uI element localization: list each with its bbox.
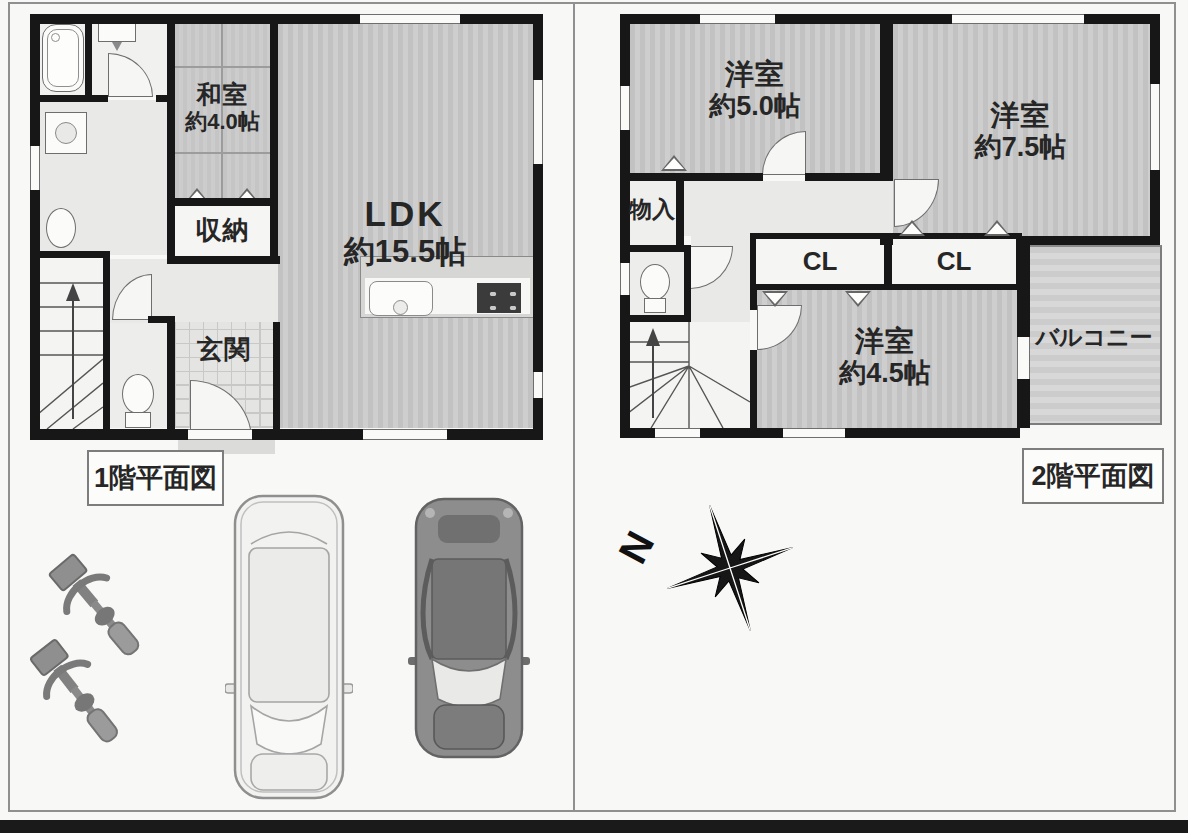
room-name: 和室 (197, 80, 249, 109)
plan-title-2f: 2階平面図 (1022, 448, 1164, 504)
closet-door-triangle (899, 220, 925, 236)
room-size: 約7.5帖 (975, 132, 1067, 163)
washing-machine-icon (45, 112, 87, 154)
entrance-opening (188, 429, 252, 440)
room-label-bedroom45: 洋室 約4.5帖 (765, 316, 1005, 398)
room-label-ldk: LDK 約15.5帖 (295, 188, 515, 276)
plan-title-text: 1階平面図 (94, 460, 217, 496)
room-size: 約5.0帖 (709, 91, 801, 122)
room-label-storage: 収納 (175, 214, 270, 248)
room-label-bedroom75: 洋室 約7.5帖 (903, 92, 1138, 170)
wall (30, 14, 543, 24)
window (360, 14, 460, 24)
compass-rose: N (608, 492, 808, 642)
room-label-balcony: バルコニー (1026, 322, 1162, 352)
bottom-black-bar (0, 820, 1188, 833)
window (952, 14, 1084, 24)
wall (167, 322, 175, 440)
window (620, 86, 630, 130)
window (620, 263, 630, 295)
window (655, 428, 700, 438)
window (30, 146, 40, 190)
wall (684, 245, 691, 322)
stairs-icon (37, 259, 103, 429)
wall (30, 95, 108, 102)
room-name: 物入 (629, 196, 675, 222)
room-label-bedroom5: 洋室 約5.0帖 (655, 52, 855, 128)
closet-label: CL (803, 246, 838, 277)
wall (620, 315, 691, 322)
closet-door-triangle (845, 291, 871, 307)
bicycle-icon (25, 633, 133, 755)
wall (1017, 379, 1030, 428)
window (700, 14, 775, 24)
room-name: 洋室 (725, 58, 785, 91)
stairs-icon (627, 322, 750, 428)
wall (175, 198, 270, 206)
washbasin-icon (46, 208, 76, 248)
gray-car-top-view (408, 497, 530, 761)
floorplan-image: 和室 約4.0帖 収納 LDK 約15.5帖 玄関 1階平面図 CL (0, 0, 1188, 833)
stove-icon (477, 283, 521, 313)
toilet-icon (640, 264, 670, 300)
closet-door-triangle (661, 155, 687, 171)
window (363, 429, 447, 440)
toilet-tank-icon (125, 412, 151, 428)
room-label-washitsu: 和室 約4.0帖 (175, 76, 270, 138)
window (783, 428, 845, 438)
wall (103, 251, 110, 440)
white-car-top-view (225, 492, 353, 804)
wall (880, 233, 893, 245)
wall (620, 14, 630, 438)
wall (880, 14, 893, 179)
wall (30, 251, 110, 258)
room-name: 洋室 (855, 325, 915, 358)
room-size: 約4.0帖 (185, 109, 260, 134)
wall-basin-icon (98, 22, 136, 42)
compass-north-label: N (610, 524, 662, 570)
room-size: 約4.5帖 (839, 358, 931, 389)
wall (750, 288, 757, 310)
closet1-box: CL (750, 233, 890, 290)
room-name: バルコニー (1035, 324, 1152, 350)
toilet-icon (122, 374, 154, 414)
window (1150, 84, 1160, 170)
wall (805, 173, 893, 181)
wall (273, 322, 280, 440)
plan-title-1f: 1階平面図 (87, 450, 224, 506)
closet2-box: CL (886, 233, 1022, 290)
closet-door-triangle (984, 220, 1010, 236)
wall (270, 14, 278, 263)
room-name: 玄関 (197, 335, 251, 365)
wall (167, 14, 175, 263)
room-name: 収納 (196, 216, 250, 246)
wall (620, 173, 763, 181)
wall (750, 350, 757, 428)
hallway2-floor (684, 181, 893, 236)
wall (167, 256, 280, 264)
room-name: 洋室 (991, 99, 1051, 132)
plan-title-text: 2階平面図 (1031, 458, 1154, 494)
wall (620, 245, 684, 252)
window (533, 80, 543, 164)
room-name: LDK (365, 194, 446, 234)
wall (1020, 236, 1150, 245)
closet-label: CL (937, 246, 972, 277)
kitchen-sink-icon (369, 281, 433, 316)
wall (30, 14, 40, 440)
compass-star (647, 492, 808, 642)
bathtub-icon (42, 24, 84, 92)
room-size: 約15.5帖 (344, 234, 466, 269)
closet-door-triangle (762, 291, 788, 307)
room-label-genkan: 玄関 (184, 334, 264, 366)
bicycles-top-view (25, 545, 190, 760)
wall (148, 316, 175, 323)
wall (85, 14, 92, 100)
panel-divider (573, 2, 575, 812)
room-label-monoire: 物入 (626, 194, 678, 224)
toilet-tank-icon (644, 298, 666, 313)
window (533, 372, 543, 398)
